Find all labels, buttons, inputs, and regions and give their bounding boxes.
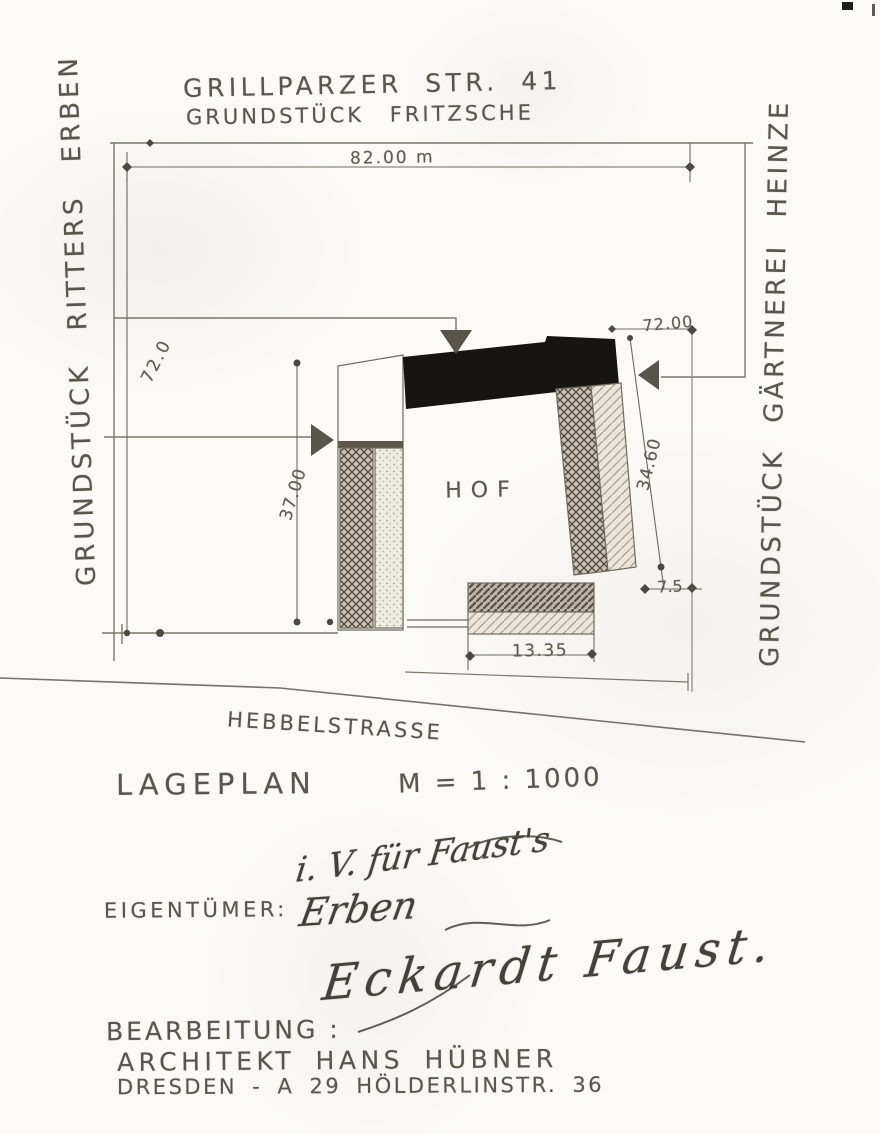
arrow-east-icon: [638, 360, 659, 390]
rear-building-hatched-half: [468, 583, 594, 612]
dim-label-13: 13.35: [490, 642, 590, 661]
west-building-stippled-wing: [375, 448, 403, 628]
south-boundary-line: [405, 672, 688, 691]
connecting-wall-double-line: [407, 620, 468, 627]
dim-label-82m: 82.00 m: [350, 149, 435, 167]
owner-signature-line2: Erben: [297, 886, 421, 933]
east-entry-leader-line: [661, 143, 745, 377]
rear-building-light-half: [468, 612, 594, 634]
west-building-divider-wall: [338, 441, 403, 448]
header-plot-title: GRUNDSTÜCK FRITZSCHE: [186, 103, 534, 129]
scan-marks: [842, 2, 875, 16]
drawing-type-label: LAGEPLAN: [116, 769, 317, 800]
lageplan-document: GRILLPARZER STR. 41 GRUNDSTÜCK FRITZSCHE…: [0, 0, 880, 1134]
owner-label: EIGENTÜMER:: [104, 899, 288, 922]
scale-label: M = 1 : 1000: [398, 764, 604, 797]
dim-label-7-5: 7.5: [648, 578, 693, 596]
architect-name: ARCHITEKT HANS HÜBNER: [117, 1046, 558, 1075]
west-building-hatched-wing: [340, 448, 373, 628]
header-street-title: GRILLPARZER STR. 41: [183, 68, 562, 101]
courtyard-label: HOF: [432, 479, 532, 503]
arrow-west-icon: [311, 424, 334, 456]
author-label: BEARBEITUNG :: [106, 1017, 341, 1044]
architect-address: DRESDEN - A 29 HÖLDERLINSTR. 36: [117, 1075, 604, 1099]
